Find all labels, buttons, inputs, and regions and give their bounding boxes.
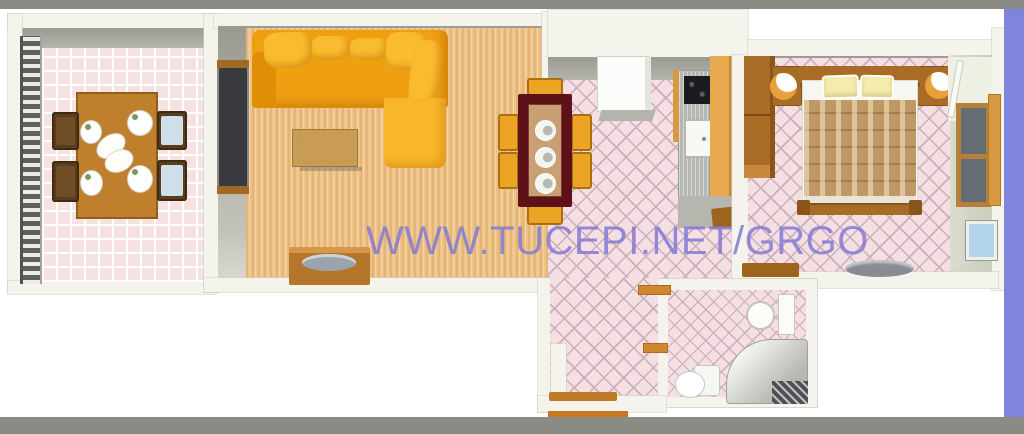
terrace-plate <box>80 170 103 196</box>
terrace-wall-shadow <box>22 28 214 50</box>
coffee-table <box>292 129 358 167</box>
sofa-cushion <box>263 31 312 69</box>
terrace-plate <box>127 110 153 136</box>
glass-pane <box>298 135 300 137</box>
bed-blanket <box>804 100 916 199</box>
dining-plate <box>535 120 556 141</box>
floor-plan: WWW.TUCEPI.NET/GRGO <box>0 0 1024 434</box>
stove-cooktop <box>684 76 710 104</box>
bathroom-sink <box>746 301 775 330</box>
coffee-table-shadow <box>300 167 362 171</box>
terrace-plate <box>127 165 153 193</box>
tv-cabinet-dish <box>302 254 356 271</box>
top-border <box>0 0 1024 9</box>
wardrobe <box>744 56 775 178</box>
hallway-shelf <box>638 285 671 295</box>
bottom-border <box>0 417 1024 434</box>
kitchen-sink <box>684 119 712 158</box>
toilet-bowl <box>675 371 705 398</box>
bedside-lamp <box>770 73 797 100</box>
bed-footboard <box>802 203 918 215</box>
shower-drain-grate <box>772 381 808 404</box>
bedroom-shelf <box>742 263 799 277</box>
small-blue-window <box>966 221 997 260</box>
living-bottom-wall <box>204 278 548 292</box>
bed-pillow <box>860 75 894 100</box>
kitchen-top-wall <box>548 10 748 57</box>
dining-plate <box>535 147 556 168</box>
dining-chair <box>498 152 519 189</box>
bed-post <box>909 200 922 215</box>
hallway-floor <box>550 278 658 404</box>
fridge-shadow <box>598 110 656 121</box>
terrace-chair <box>52 161 79 202</box>
fridge <box>597 56 651 112</box>
bedroom-window <box>956 103 991 207</box>
dining-chair <box>498 114 519 151</box>
terrace-chair <box>157 160 187 201</box>
bedroom-top-wall <box>748 40 1002 56</box>
watermark-text: WWW.TUCEPI.NET/GRGO <box>366 221 869 261</box>
terrace-railing <box>20 36 42 284</box>
bathroom-mirror <box>778 294 795 335</box>
dining-chair <box>571 152 592 189</box>
hallway-stub-wall <box>551 344 566 396</box>
sofa-chaise <box>384 98 446 168</box>
balcony-door <box>217 60 249 194</box>
window-shutter <box>988 94 1001 206</box>
sofa-cushion <box>312 36 350 60</box>
kitchen-counter-edge <box>673 70 679 142</box>
kitchen-tall-cabinet <box>710 56 732 196</box>
dining-chair <box>571 114 592 151</box>
hallway-stub-cap <box>549 392 617 401</box>
bed-pillow <box>822 74 860 99</box>
terrace-chair <box>157 111 187 150</box>
bed-post <box>797 200 810 215</box>
right-border <box>1004 9 1024 417</box>
terrace-chair <box>52 112 79 150</box>
hallway-left-wall <box>538 278 550 412</box>
terrace-plate <box>80 120 102 144</box>
hallway-shelf <box>643 343 668 353</box>
sofa-cushion <box>350 38 388 60</box>
dining-plate <box>535 173 556 194</box>
